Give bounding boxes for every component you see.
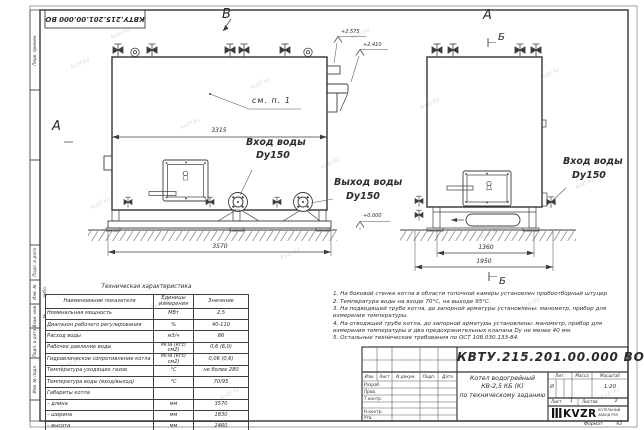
tech-units: МПа (кгс/см2) [154, 342, 194, 354]
tech-name: Температура воды (вход/выход) [46, 377, 154, 388]
tech-units: МВт [154, 309, 194, 320]
col-list: Лист [377, 375, 392, 379]
tech-units: °С [154, 365, 194, 376]
table-row: – ширинамм1830 [46, 410, 249, 421]
table-row: Расход водым3/ч86 [46, 331, 249, 342]
tech-name: Расход воды [46, 331, 154, 342]
tech-value: 70/95 [194, 377, 249, 388]
margin-label-podp-data-1: Подп. и дата [30, 245, 40, 280]
table-row: Температура уходящих газов°Сне более 280 [46, 365, 249, 376]
product-title-1: Котел водогрейный [458, 376, 547, 382]
note-4: 4. На отводящей трубе котла, до запорной… [333, 321, 627, 334]
inlet-side-label: Вход воды [563, 157, 623, 167]
table-row: – высотамм2460 [46, 421, 249, 430]
section-label-b-top: Б [498, 33, 505, 43]
col-data: Дата [438, 375, 457, 379]
tech-units [154, 388, 194, 399]
sheet-value: 1 [567, 400, 576, 405]
tech-value: 0,6 (6,0) [194, 342, 249, 354]
col-podp: Подп. [420, 375, 438, 379]
see-note-annotation: см. п. 1 [252, 97, 291, 105]
note-3: 3. На подводящей трубе котла, до запорно… [333, 306, 627, 319]
table-row: Габариты котла [46, 388, 249, 399]
tech-col-name: Наименование показателя [46, 295, 154, 309]
lit-header: Лит. [548, 374, 572, 378]
margin-label-podp-data-2: Подп. и дата [30, 328, 40, 358]
margin-label-perv-primen: Перв. примен. [30, 10, 40, 90]
tech-table: Наименование показателя Единицы измерени… [45, 294, 249, 430]
col-ndoc: N докум. [392, 375, 420, 379]
margin-label-inv-podl: Инв. № подл. [30, 358, 40, 400]
doc-number-rotated: КВТУ.215.201.00.000 ВО [45, 10, 145, 28]
drawing-sheet: kvzr.kz kvzr.kz kvzr.kz kvzr.kz kvzr.kz … [0, 0, 644, 430]
view-label-a-left: А [52, 120, 61, 133]
scale-header: Масштаб [592, 374, 628, 378]
tech-value [194, 388, 249, 399]
dim-body-length: 3315 [199, 128, 239, 134]
elevation-top: +2.575 [341, 30, 360, 35]
tech-value: 1830 [194, 410, 249, 421]
tech-name: – ширина [46, 410, 154, 421]
tech-value: 3570 [194, 399, 249, 410]
mass-header: Масса [572, 374, 592, 378]
note-2: 2. Температура воды на входе 70°С, на вы… [333, 299, 627, 306]
tech-name: – высота [46, 421, 154, 430]
tech-value: 0,06 (0,6) [194, 354, 249, 366]
tech-value: 2460 [194, 421, 249, 430]
dim-base-length: 3570 [200, 244, 240, 250]
tech-value: 40-110 [194, 320, 249, 331]
tech-units: мм [154, 399, 194, 410]
tech-name: Диапазон рабочего регулирования [46, 320, 154, 331]
tech-name: Номинальная мощность [46, 309, 154, 320]
tech-units: мм [154, 410, 194, 421]
table-row: Температура воды (вход/выход)°С70/95 [46, 377, 249, 388]
dim-side-inner: 1360 [466, 245, 506, 251]
kvzr-logo: KVZR [563, 408, 597, 420]
format-value: А3 [616, 423, 622, 428]
tech-name: – длина [46, 399, 154, 410]
lit-value: И [548, 385, 556, 390]
table-row: Рабочее давление водыМПа (кгс/см2)0,6 (6… [46, 342, 249, 354]
logo-subtitle-2: ЗАВОД РЭП [598, 414, 618, 417]
tech-col-units: Единицы измерения [154, 295, 194, 309]
outlet-front-dn: Dy150 [346, 192, 380, 202]
note-5: 5. Остальные технические требования по О… [333, 335, 627, 342]
tech-units: м3/ч [154, 331, 194, 342]
ground-hatching [88, 230, 576, 241]
table-row: – длинамм3570 [46, 399, 249, 410]
tech-name: Температура уходящих газов [46, 365, 154, 376]
sheet-header: Лист [551, 400, 562, 404]
row-nkontr: Н.контр. [364, 410, 383, 414]
tech-name: Гидравлическое сопротивление котла [46, 354, 154, 366]
row-tkontr: Т.контр. [364, 397, 382, 401]
row-razrab: Разраб. [364, 383, 380, 387]
dim-side-outer: 1950 [464, 259, 504, 265]
table-row: Диапазон рабочего регулирования%40-110 [46, 320, 249, 331]
tech-col-value: Значение [194, 295, 249, 309]
tech-name: Габариты котла [46, 388, 154, 399]
view-label-v: В [222, 8, 231, 21]
technical-notes: 1. На боковой стенке котла в области топ… [333, 291, 627, 343]
tech-value: 2,5 [194, 309, 249, 320]
doc-number: КВТУ.215.201.00.000 ВО [457, 351, 628, 363]
view-label-a-right: А [483, 9, 492, 22]
section-label-b-bottom: Б [499, 277, 506, 287]
tech-value: не более 280 [194, 365, 249, 376]
sheets-value: 2 [610, 400, 622, 405]
tech-units: МПа (кгс/см2) [154, 354, 194, 366]
table-row: Номинальная мощностьМВт2,5 [46, 309, 249, 320]
scale-value: 1:20 [592, 385, 628, 391]
outlet-front-label: Выход воды [334, 178, 402, 188]
elevation-zero: +0.000 [363, 214, 382, 219]
tech-units: °С [154, 377, 194, 388]
note-1: 1. На боковой стенке котла в области топ… [333, 291, 627, 298]
inlet-front-dn: Dy150 [256, 151, 290, 161]
inlet-side-dn: Dy150 [572, 171, 606, 181]
table-row: Гидравлическое сопротивление котлаМПа (к… [46, 354, 249, 366]
tech-value: 86 [194, 331, 249, 342]
sheets-header: Листов [582, 400, 598, 404]
product-title-3: по техническому заданию [458, 393, 547, 399]
row-prov: Пров. [364, 390, 376, 394]
col-izm: Изм. [362, 375, 377, 379]
logo-bars-icon [552, 408, 554, 418]
format-label: Формат [584, 423, 603, 428]
tech-name: Рабочее давление воды [46, 342, 154, 354]
elevation-mid: +2.410 [363, 43, 382, 48]
logo-subtitle-1: КОТЕЛЬНЫЙ [598, 409, 620, 412]
tech-units: мм [154, 421, 194, 430]
row-utv: Утв. [364, 416, 373, 420]
tech-table-title: Техническая характеристика [45, 285, 248, 291]
tech-units: % [154, 320, 194, 331]
product-title-2: КВ-2,5 КБ (К) [458, 384, 547, 390]
inlet-front-label: Вход воды [246, 138, 306, 148]
